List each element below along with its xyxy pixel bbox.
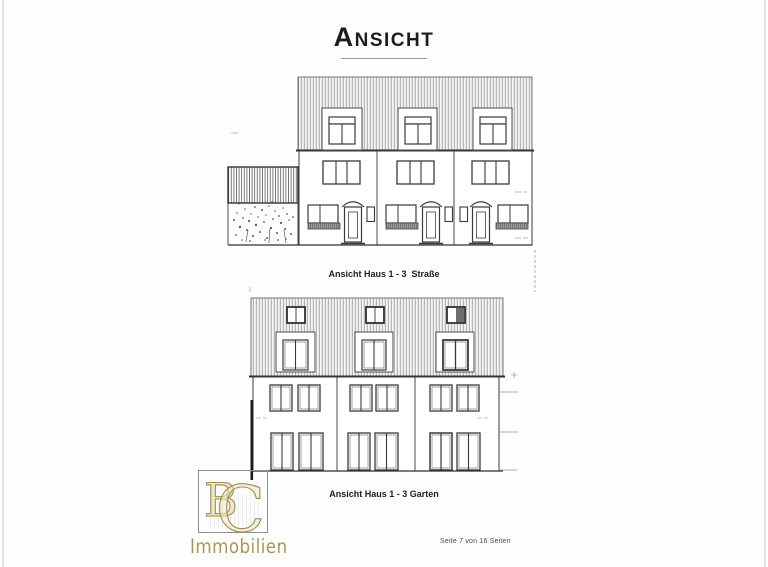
drawing-caption-street: Ansicht Haus 1 - 3 Straße — [259, 269, 509, 279]
street-elevation-drawing — [220, 70, 550, 300]
drawing-caption-garden: Ansicht Haus 1 - 3 Garten — [259, 489, 509, 499]
side-window — [460, 207, 468, 222]
page-number: Seite 7 von 16 Seiten — [440, 538, 560, 545]
upper-window-h3b — [457, 385, 479, 411]
garden-elevation-drawing — [235, 285, 525, 485]
shrub — [233, 201, 294, 243]
street-dormer-3 — [473, 108, 512, 150]
logo-subtitle: Immobilien — [190, 535, 288, 558]
upper-window-h1a — [270, 385, 292, 411]
terrace-door-h1b — [299, 433, 323, 470]
upper-window-h1b — [298, 385, 320, 411]
document-page: Ansicht — [0, 0, 768, 567]
garden-ground-windows — [271, 433, 480, 470]
street-dormer-2 — [398, 108, 437, 150]
garage — [228, 167, 298, 245]
garden-dormer-2 — [355, 332, 393, 372]
upper-window-1 — [323, 161, 360, 184]
terrace-door-h3a — [430, 433, 452, 470]
terrace-door-h3b — [457, 433, 480, 470]
upper-window-3 — [472, 161, 509, 184]
upper-window-h3a — [430, 385, 452, 411]
scan-edge-left — [2, 0, 4, 567]
title-underline — [341, 58, 427, 59]
window-sill-box — [496, 223, 528, 229]
street-upper-windows — [323, 161, 509, 184]
scan-edge-right — [764, 0, 766, 567]
logo-monogram: B C — [190, 463, 290, 543]
window-sill-box — [386, 223, 418, 229]
garden-dormer-1 — [276, 332, 315, 372]
garden-dormer-3 — [436, 332, 474, 372]
page-title: Ansicht — [0, 22, 768, 53]
upper-window-2 — [397, 161, 434, 184]
side-window — [445, 207, 453, 222]
window-sill-box — [308, 223, 340, 229]
terrace-door-h2b — [375, 433, 398, 470]
terrace-door-h2a — [348, 433, 370, 470]
logo-letter-c: C — [216, 473, 265, 543]
upper-window-h2b — [376, 385, 398, 411]
street-dormer-1 — [322, 108, 362, 150]
upper-window-h2a — [350, 385, 372, 411]
side-window — [367, 207, 375, 222]
